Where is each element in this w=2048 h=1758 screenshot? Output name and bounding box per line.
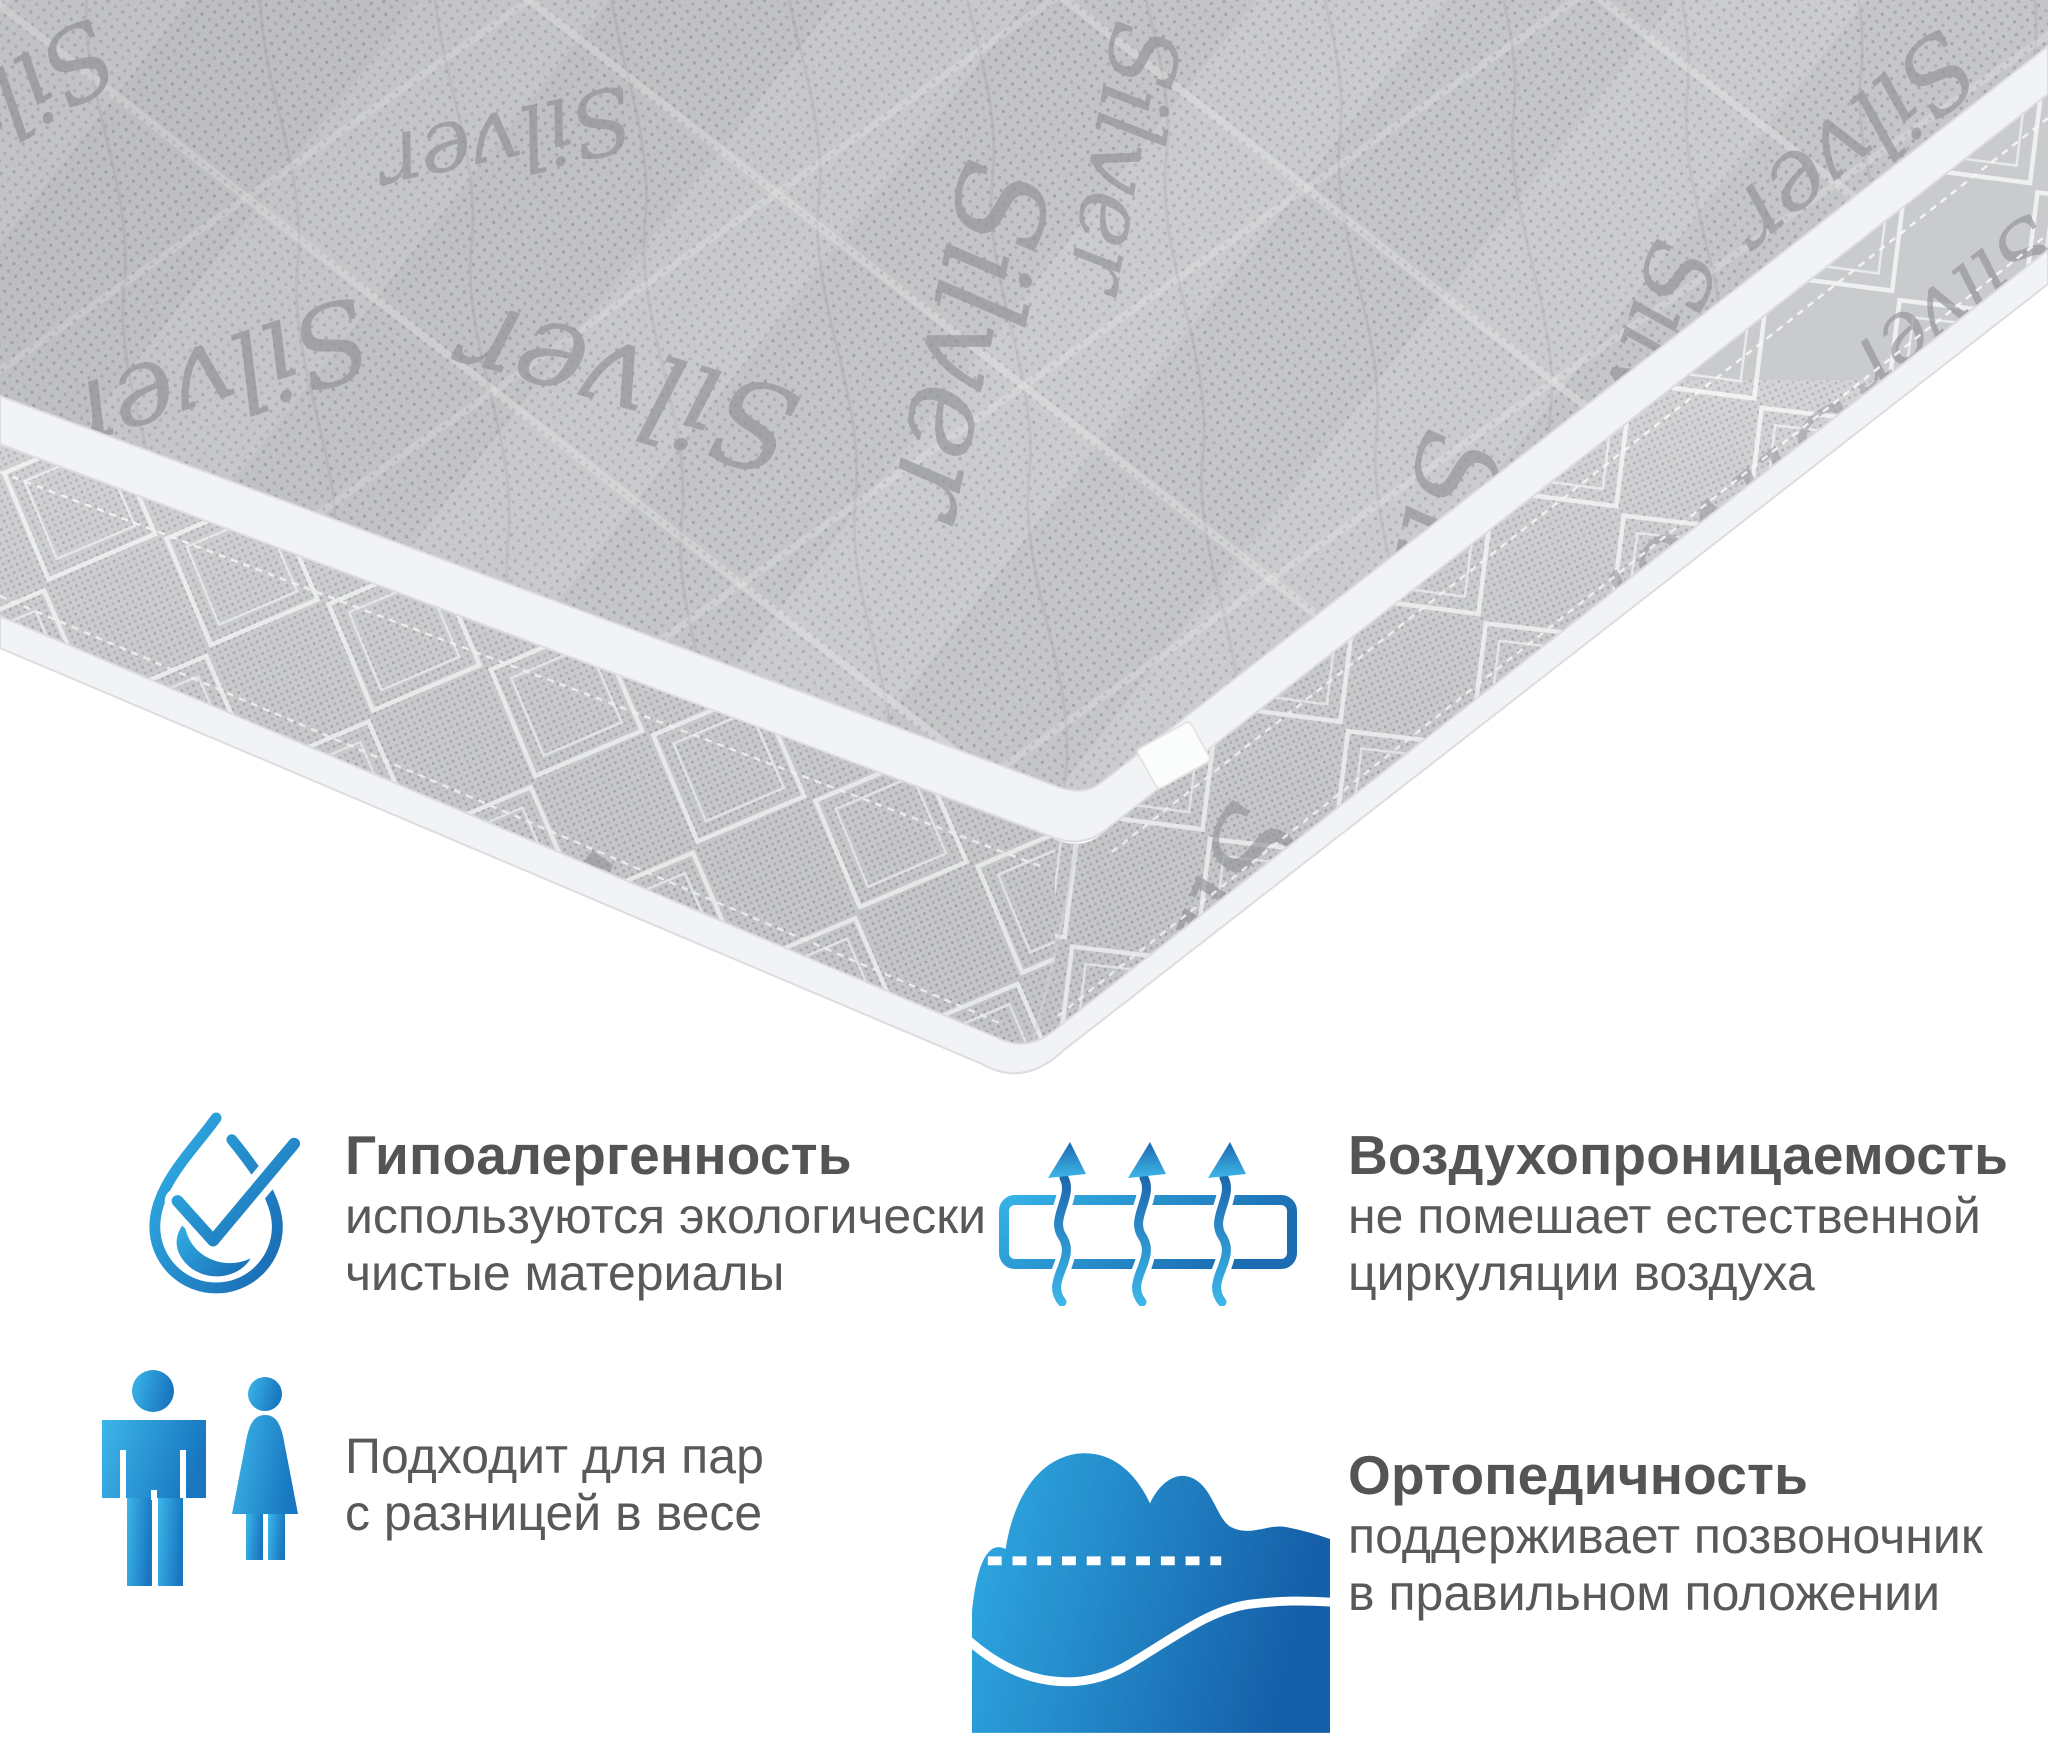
feature-couples: Подходит для пар с разницей в весе <box>345 1428 764 1542</box>
feature-body: Подходит для пар с разницей в весе <box>345 1428 764 1542</box>
product-infographic: Silver Silver Silver Silver Silver Silve… <box>0 0 2048 1758</box>
man-figure <box>102 1370 206 1586</box>
water-drop-check-icon <box>138 1104 306 1298</box>
feature-orthopedic: Ортопедичность поддерживает позвоночник … <box>1348 1442 1983 1622</box>
airflow-arrow <box>1128 1142 1166 1302</box>
feature-hypoallergenic: Гипоалергенность используются экологичес… <box>345 1122 986 1302</box>
man-and-woman-icon <box>100 1362 300 1590</box>
feature-title: Гипоалергенность <box>345 1122 986 1188</box>
airflow-arrow <box>1208 1142 1246 1302</box>
feature-body: поддерживает позвоночник в правильном по… <box>1348 1508 1983 1622</box>
feature-breathability: Воздухопроницаемость не помешает естеств… <box>1348 1122 2008 1302</box>
feature-body: не помешает естественной циркуляции возд… <box>1348 1188 2008 1302</box>
airflow-through-layer-icon <box>998 1134 1298 1306</box>
airflow-arrow <box>1048 1142 1086 1302</box>
feature-title: Воздухопроницаемость <box>1348 1122 2008 1188</box>
body-on-mattress-icon <box>972 1444 1330 1733</box>
feature-title: Ортопедичность <box>1348 1442 1983 1508</box>
feature-body: используются экологически чистые материа… <box>345 1188 986 1302</box>
woman-figure <box>232 1377 298 1560</box>
body-on-mattress-silhouette <box>972 1453 1330 1733</box>
